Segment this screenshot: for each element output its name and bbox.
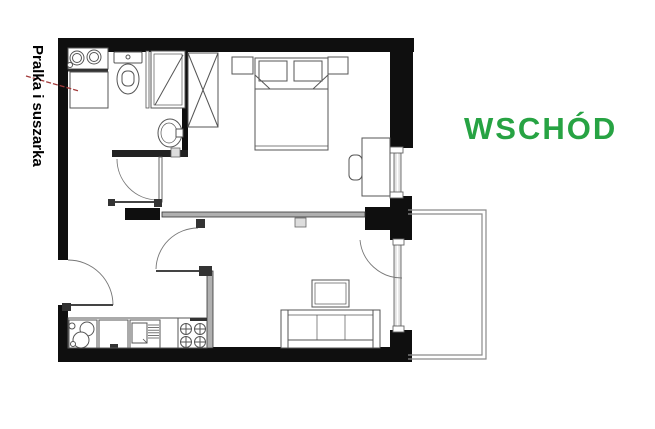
nightstand-icon xyxy=(232,57,253,74)
living-room xyxy=(281,280,380,348)
corner-sink-icon xyxy=(69,320,97,348)
pillow-icon xyxy=(259,61,287,81)
shower-icon xyxy=(151,51,185,108)
wall-mount-box xyxy=(295,218,306,227)
cooktop-4-burner-icon xyxy=(178,318,207,348)
door-hinge-block xyxy=(196,219,205,228)
wardrobe-icon xyxy=(188,53,218,127)
wall-middle-thin xyxy=(162,212,365,217)
balcony-outer-rail xyxy=(408,210,486,359)
bedroom-window xyxy=(389,147,413,198)
east-direction-label: WSCHÓD xyxy=(464,110,617,146)
living-room-door-swing-arc xyxy=(156,228,198,269)
door-hinge-block xyxy=(154,199,162,207)
sofa-3-seat-icon xyxy=(281,310,380,348)
balcony-door-frame-cap xyxy=(393,326,404,332)
wall-top xyxy=(58,38,414,52)
toilet-icon xyxy=(114,52,142,94)
window-frame-cap xyxy=(390,147,403,153)
living-room-door xyxy=(156,219,212,276)
hand-basin-icon xyxy=(158,119,183,147)
door-hinge-block xyxy=(62,303,71,311)
bathroom-door-jamb xyxy=(159,157,162,202)
floor-plan-canvas: Pralka i suszarka WSCHÓD xyxy=(0,0,655,429)
door-hinge-block xyxy=(108,199,115,206)
wall-hinge-plate xyxy=(171,148,180,157)
chair-icon xyxy=(349,155,362,180)
washer-dryer-label: Pralka i suszarka xyxy=(29,45,46,167)
bedroom xyxy=(188,53,390,196)
wall-kitchen-divider xyxy=(207,271,213,348)
shower-screen xyxy=(146,51,149,108)
wall-middle-black-left xyxy=(125,208,160,220)
double-washbasin-icon xyxy=(68,48,109,72)
bathroom-door-swing-arc xyxy=(117,159,157,200)
bathroom-door xyxy=(108,157,162,207)
entry-door xyxy=(62,260,113,311)
balcony xyxy=(408,210,486,359)
entry-door-swing-arc xyxy=(68,260,113,305)
wall-right-lower xyxy=(390,330,412,362)
door-hinge-block xyxy=(199,266,212,276)
pillow-icon xyxy=(294,61,322,81)
coffee-table-icon xyxy=(312,280,349,307)
balcony-door-frame-cap xyxy=(393,239,404,245)
wall-bottom xyxy=(58,347,391,362)
double-bed-icon xyxy=(255,58,328,150)
floor-plan-drawing: Pralka i suszarka WSCHÓD xyxy=(0,0,655,429)
kitchen-cabinet-icon xyxy=(99,320,128,348)
wall-middle-black-right xyxy=(365,207,410,230)
wall-right-upper xyxy=(390,42,413,148)
balcony-inner-rail xyxy=(408,214,482,355)
wall-left-upper xyxy=(58,38,68,260)
nightstand-icon xyxy=(328,57,348,74)
kitchen-sink-icon xyxy=(130,320,160,348)
bathroom xyxy=(68,48,186,147)
kitchen xyxy=(68,318,207,348)
window-frame-cap xyxy=(390,192,403,198)
desk-icon xyxy=(362,138,390,196)
